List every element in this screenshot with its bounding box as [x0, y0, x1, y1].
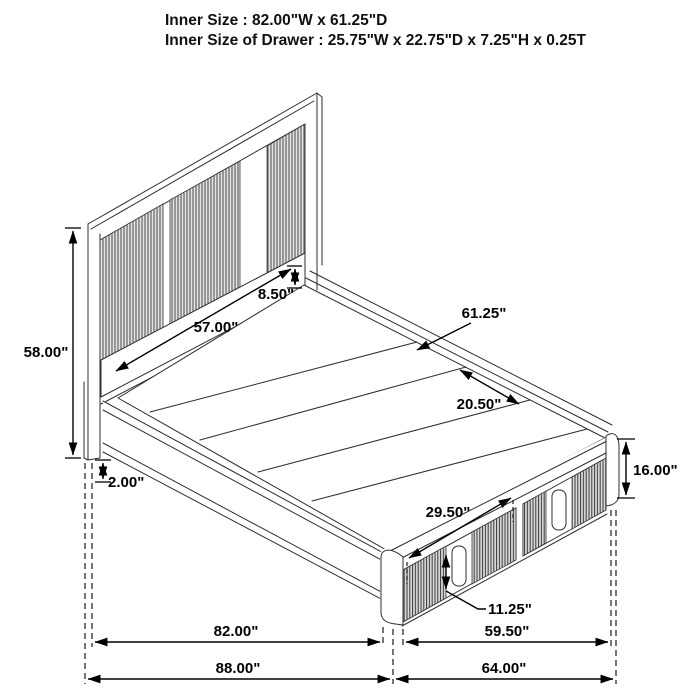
dim-label-platform-depth: 61.25": [462, 305, 507, 322]
dim-label-drawer-front-height: 11.25": [488, 601, 532, 618]
dimension-footboard-inner-width: 59.50": [406, 623, 608, 642]
dimension-overall-length: 88.00": [88, 660, 390, 679]
dimension-inner-length: 82.00": [95, 623, 380, 642]
dim-label-footboard-height: 16.00": [633, 462, 678, 479]
dim-label-headboard-height: 58.00": [24, 344, 69, 361]
foot-corner-post: [381, 550, 403, 625]
dim-label-rail-height: 8.50": [258, 286, 294, 303]
dim-label-section-depth: 20.50": [457, 396, 502, 413]
dimension-overall-width: 64.00": [396, 660, 613, 679]
diagram-canvas: 58.00" 8.50" 57.00" 61.25" 20.50" 16.00"…: [0, 0, 700, 700]
dimension-headboard-height: 58.00": [24, 228, 81, 458]
title-block: Inner Size : 82.00"W x 61.25"D Inner Siz…: [165, 12, 586, 49]
dim-label-footboard-inner-width: 59.50": [485, 623, 530, 640]
drawer-inner-size-text: Inner Size of Drawer : 25.75"W x 22.75"D…: [165, 32, 586, 49]
right-corner-post: [606, 434, 619, 506]
dim-label-overall-width: 64.00": [482, 660, 527, 677]
dim-label-headboard-inner-width: 57.00": [194, 319, 239, 336]
dim-label-floor-clearance: 2.00": [108, 474, 144, 491]
drawer-handle-1: [452, 546, 466, 586]
dimension-footboard-height: 16.00": [617, 439, 678, 498]
dimension-platform-depth: 61.25": [417, 305, 506, 350]
bed-dimension-diagram: 58.00" 8.50" 57.00" 61.25" 20.50" 16.00"…: [0, 0, 700, 700]
dim-label-drawer-width: 29.50": [426, 504, 471, 521]
inner-size-text: Inner Size : 82.00"W x 61.25"D: [165, 12, 387, 29]
drawer-handle-2: [552, 490, 566, 530]
dim-label-overall-length: 88.00": [216, 660, 261, 677]
dim-label-inner-length: 82.00": [214, 623, 259, 640]
